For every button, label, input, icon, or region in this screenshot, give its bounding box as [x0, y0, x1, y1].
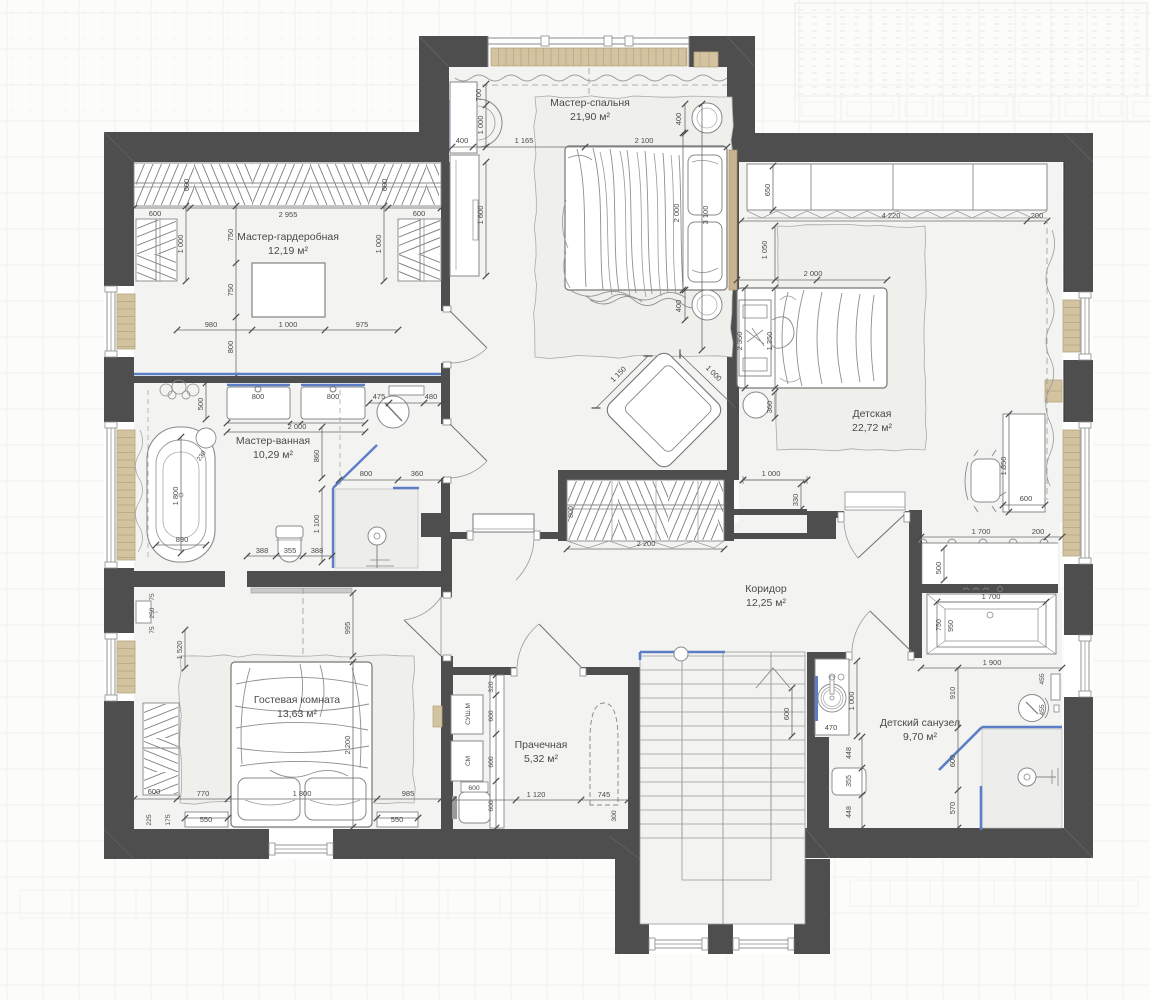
svg-text:22,72 м²: 22,72 м²: [852, 422, 892, 434]
svg-text:1 000: 1 000: [176, 235, 185, 254]
svg-text:1 700: 1 700: [982, 592, 1001, 601]
svg-text:400: 400: [674, 113, 683, 126]
svg-text:Детская: Детская: [853, 408, 892, 420]
svg-text:600: 600: [488, 756, 495, 768]
svg-text:600: 600: [182, 179, 191, 192]
svg-text:995: 995: [343, 622, 352, 635]
svg-text:200: 200: [1032, 527, 1045, 536]
svg-text:800: 800: [226, 341, 235, 354]
svg-text:355: 355: [846, 775, 853, 787]
svg-text:320: 320: [488, 681, 495, 693]
svg-text:250: 250: [149, 607, 156, 618]
svg-text:1 350: 1 350: [765, 332, 774, 351]
svg-text:1 600: 1 600: [476, 206, 485, 225]
svg-text:200: 200: [1031, 211, 1044, 220]
svg-text:975: 975: [356, 320, 369, 329]
svg-text:1 120: 1 120: [527, 790, 546, 799]
svg-text:1 165: 1 165: [515, 136, 534, 145]
svg-text:1 700: 1 700: [972, 527, 991, 536]
svg-text:2 955: 2 955: [279, 210, 298, 219]
svg-text:12,25 м²: 12,25 м²: [746, 597, 786, 609]
svg-text:388: 388: [311, 546, 324, 555]
svg-text:455: 455: [1039, 704, 1046, 716]
svg-text:985: 985: [402, 789, 415, 798]
svg-text:600: 600: [1020, 494, 1033, 503]
svg-text:2 100: 2 100: [635, 136, 654, 145]
svg-text:600: 600: [488, 800, 495, 812]
svg-text:2 000: 2 000: [672, 204, 681, 223]
svg-text:21,90 м²: 21,90 м²: [570, 111, 610, 123]
svg-text:600: 600: [380, 179, 389, 192]
svg-text:1 350: 1 350: [999, 457, 1008, 476]
svg-text:600: 600: [468, 785, 480, 792]
svg-text:175: 175: [165, 814, 172, 826]
svg-text:3 100: 3 100: [701, 206, 710, 225]
svg-text:2 000: 2 000: [288, 422, 307, 431]
svg-text:Мастер-ванная: Мастер-ванная: [236, 435, 310, 447]
svg-text:Мастер-гардеробная: Мастер-гардеробная: [237, 231, 339, 243]
svg-text:475: 475: [373, 392, 386, 401]
svg-text:750: 750: [226, 284, 235, 297]
svg-text:950: 950: [948, 620, 955, 632]
svg-text:600: 600: [149, 209, 162, 218]
svg-text:2 200: 2 200: [637, 539, 656, 548]
svg-text:СМ: СМ: [465, 756, 472, 766]
svg-text:570: 570: [948, 802, 957, 815]
svg-text:750: 750: [226, 229, 235, 242]
svg-text:9,70 м²: 9,70 м²: [903, 731, 938, 743]
svg-text:470: 470: [825, 723, 838, 732]
svg-text:1 050: 1 050: [760, 241, 769, 260]
svg-text:5,32 м²: 5,32 м²: [524, 753, 559, 765]
svg-text:Мастер-спальня: Мастер-спальня: [550, 97, 630, 109]
svg-text:388: 388: [256, 546, 269, 555]
svg-text:75: 75: [149, 593, 156, 601]
svg-text:500: 500: [196, 398, 205, 411]
svg-text:910: 910: [948, 687, 957, 700]
svg-text:360: 360: [765, 401, 774, 414]
svg-text:1 000: 1 000: [374, 235, 383, 254]
svg-text:745: 745: [598, 790, 611, 799]
svg-text:750: 750: [936, 619, 943, 631]
svg-text:700: 700: [474, 89, 483, 102]
svg-text:360: 360: [411, 469, 424, 478]
svg-text:4 220: 4 220: [882, 211, 901, 220]
svg-text:600: 600: [782, 708, 791, 721]
svg-text:980: 980: [205, 320, 218, 329]
svg-text:Прачечная: Прачечная: [515, 739, 568, 751]
svg-text:800: 800: [360, 469, 373, 478]
svg-text:448: 448: [846, 747, 853, 759]
svg-text:13,63 м²: 13,63 м²: [277, 708, 317, 720]
svg-text:860: 860: [312, 450, 321, 463]
svg-text:770: 770: [197, 789, 210, 798]
svg-text:2 200: 2 200: [343, 736, 352, 755]
svg-text:1 100: 1 100: [312, 515, 321, 534]
svg-text:500: 500: [934, 562, 943, 575]
svg-text:300: 300: [611, 810, 618, 822]
svg-text:1 800: 1 800: [171, 487, 180, 506]
svg-text:448: 448: [846, 806, 853, 818]
svg-text:1 000: 1 000: [476, 116, 485, 135]
svg-text:480: 480: [425, 392, 438, 401]
svg-text:355: 355: [284, 546, 297, 555]
svg-text:2 350: 2 350: [735, 332, 744, 351]
svg-text:600: 600: [948, 755, 957, 768]
svg-text:Детский санузел: Детский санузел: [880, 717, 960, 729]
svg-text:2 000: 2 000: [804, 269, 823, 278]
svg-text:225: 225: [146, 814, 153, 826]
svg-text:Коридор: Коридор: [745, 583, 787, 595]
svg-text:890: 890: [176, 535, 189, 544]
svg-text:1 000: 1 000: [762, 469, 781, 478]
svg-text:1 520: 1 520: [175, 641, 184, 660]
svg-text:550: 550: [200, 815, 213, 824]
svg-text:75: 75: [149, 626, 156, 634]
svg-text:10,29 м²: 10,29 м²: [253, 449, 293, 461]
svg-text:800: 800: [252, 392, 265, 401]
svg-text:400: 400: [674, 300, 683, 313]
svg-text:600: 600: [413, 209, 426, 218]
svg-text:1 900: 1 900: [983, 658, 1002, 667]
svg-text:1 000: 1 000: [847, 692, 856, 711]
svg-text:1 000: 1 000: [279, 320, 298, 329]
svg-text:330: 330: [791, 494, 800, 507]
svg-text:400: 400: [456, 136, 469, 145]
svg-text:1 800: 1 800: [293, 789, 312, 798]
svg-text:455: 455: [1039, 673, 1046, 685]
svg-text:СУШ.М: СУШ.М: [465, 703, 472, 725]
svg-text:600: 600: [148, 787, 161, 796]
svg-text:Гостевая комната: Гостевая комната: [254, 694, 340, 706]
svg-text:800: 800: [327, 392, 340, 401]
svg-text:550: 550: [391, 815, 404, 824]
svg-text:800: 800: [568, 506, 575, 518]
svg-text:12,19 м²: 12,19 м²: [268, 245, 308, 257]
svg-text:650: 650: [763, 184, 772, 197]
svg-text:600: 600: [488, 710, 495, 722]
